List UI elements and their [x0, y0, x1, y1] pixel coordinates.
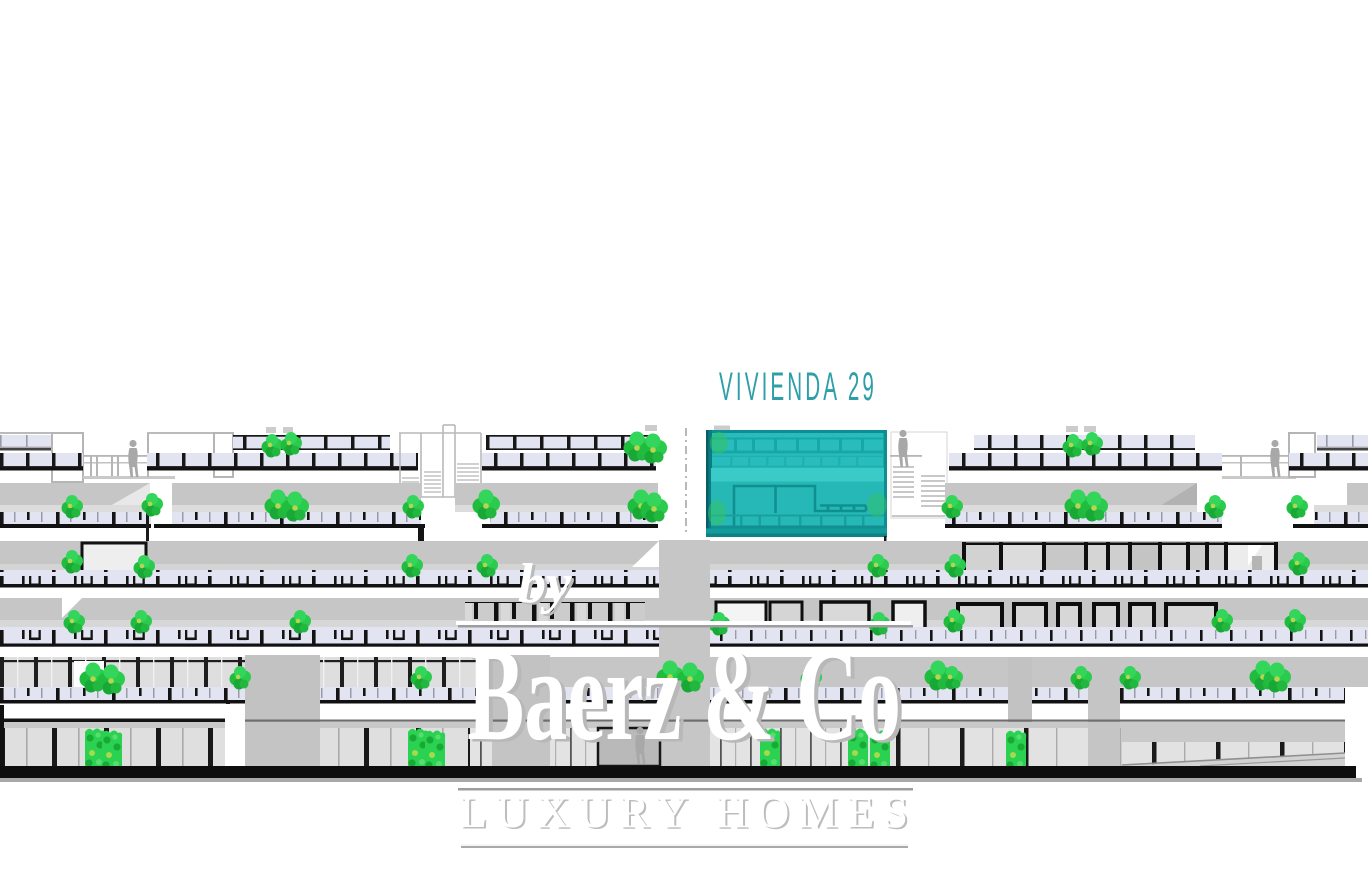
svg-text:by: by: [518, 553, 572, 615]
svg-text:Baerz & Co: Baerz & Co: [467, 620, 901, 768]
svg-text:LUXURY HOMES: LUXURY HOMES: [460, 788, 908, 837]
